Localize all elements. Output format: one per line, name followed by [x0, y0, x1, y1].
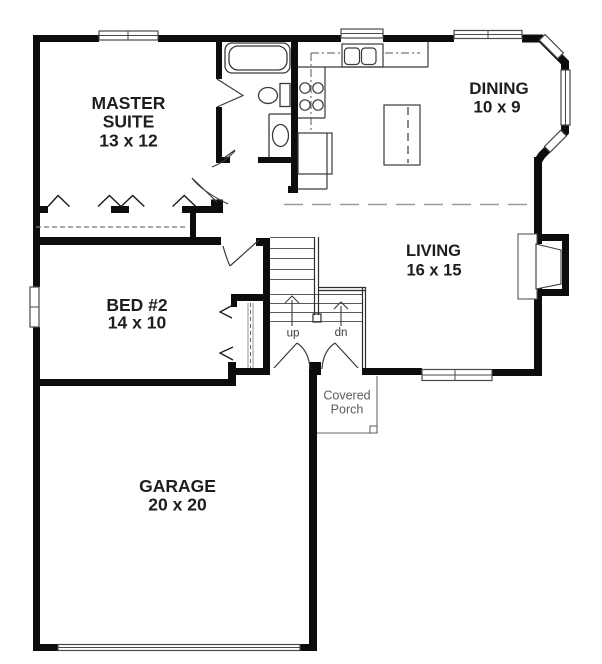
svg-text:13 x 12: 13 x 12 [99, 131, 158, 151]
svg-text:SUITE: SUITE [103, 112, 155, 132]
svg-text:GARAGE: GARAGE [139, 476, 216, 496]
svg-text:Porch: Porch [331, 403, 364, 417]
svg-text:DINING: DINING [469, 79, 529, 98]
svg-text:up: up [287, 328, 300, 340]
svg-text:MASTER: MASTER [92, 93, 166, 113]
svg-text:Covered: Covered [323, 389, 370, 403]
svg-text:dn: dn [335, 327, 348, 339]
svg-text:20 x 20: 20 x 20 [148, 495, 207, 515]
svg-text:16 x 15: 16 x 15 [406, 262, 461, 280]
svg-text:14 x 10: 14 x 10 [108, 313, 167, 333]
svg-text:LIVING: LIVING [406, 242, 461, 260]
svg-text:10 x 9: 10 x 9 [473, 98, 520, 117]
